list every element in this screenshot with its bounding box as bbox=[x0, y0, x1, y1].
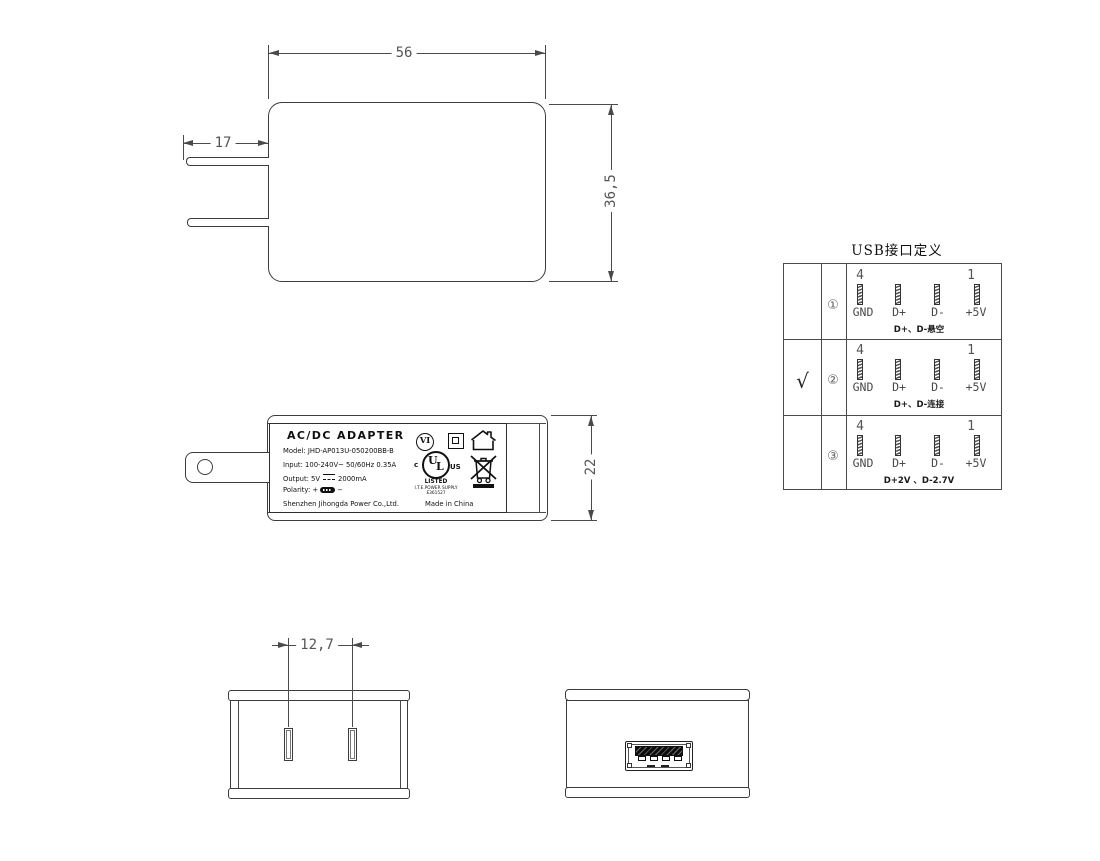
dim-127-label: 12,7 bbox=[296, 637, 338, 653]
weee-crossed-bin-icon bbox=[469, 453, 498, 491]
adapter-technical-drawing: 56 36,5 17 22 AC/DC ADAPTER Model: JHD-A… bbox=[0, 0, 1100, 861]
dim-127-ext-left bbox=[288, 638, 289, 727]
label-polarity-prefix: Polarity: bbox=[283, 486, 310, 494]
efficiency-mark-vi-icon: VI bbox=[416, 433, 434, 451]
row3-number: ③ bbox=[827, 449, 839, 464]
dim-22-ext-bottom bbox=[551, 520, 597, 521]
row2-pin4-number: 4 bbox=[856, 343, 864, 358]
product-label: AC/DC ADAPTER Model: JHD-AP013U-050200BB… bbox=[269, 423, 507, 513]
plugface-bottom-cap bbox=[228, 788, 410, 799]
label-title: AC/DC ADAPTER bbox=[287, 429, 405, 442]
label-made-in: Made in China bbox=[425, 500, 473, 508]
usb-table-row-2: √ ② 4 1 GND D+ D- +5V D+、D-连接 bbox=[784, 339, 1003, 415]
row1-number: ① bbox=[827, 298, 839, 313]
row1-pin-dminus-icon bbox=[934, 284, 940, 305]
row2-check: √ bbox=[784, 369, 821, 393]
ul-us-text: US bbox=[450, 463, 461, 471]
row1-pin-gnd-icon bbox=[857, 284, 863, 305]
ul-c-text: c bbox=[414, 461, 418, 469]
front-view-prong-top bbox=[186, 157, 269, 166]
dim-22-arrow-bottom bbox=[588, 510, 594, 520]
row1-pin-5v-icon bbox=[974, 284, 980, 305]
dim-365-arrow-bottom bbox=[608, 271, 614, 281]
side-view-blade-hole bbox=[197, 459, 213, 475]
label-polarity-plus: + bbox=[312, 486, 318, 494]
row3-label-dminus: D- bbox=[931, 456, 945, 470]
plugface-inner-line-left bbox=[238, 701, 239, 788]
label-input: Input: 100-240V~ 50/60Hz 0.35A bbox=[283, 461, 396, 469]
label-company: Shenzhen Jihongda Power Co.,Ltd. bbox=[283, 500, 399, 508]
row2-number: ② bbox=[827, 373, 839, 388]
label-polarity-minus: − bbox=[337, 486, 343, 494]
row2-pin-gnd-icon bbox=[857, 359, 863, 380]
row1-label-gnd: GND bbox=[853, 305, 874, 319]
label-output: Output: 5V2000mA bbox=[283, 474, 367, 483]
usb-port-spring-left bbox=[647, 765, 655, 767]
usb-port-corner-tl bbox=[627, 743, 632, 748]
dim-17-arrow-right bbox=[258, 140, 268, 146]
row3-note: D+2V 、D-2.7V bbox=[884, 474, 955, 486]
row1-note: D+、D-悬空 bbox=[894, 323, 944, 335]
plugface-inner-line-right bbox=[400, 701, 401, 788]
label-output-prefix: Output: 5V bbox=[283, 475, 320, 483]
plugface-body bbox=[230, 700, 408, 789]
usbface-bottom-cap bbox=[565, 787, 750, 798]
dim-56-arrow-left bbox=[269, 50, 279, 56]
dim-365-arrow-top bbox=[608, 105, 614, 115]
usb-table-row-3: ③ 4 1 GND D+ D- +5V D+2V 、D-2.7V bbox=[784, 415, 1003, 491]
dim-17-arrow-left bbox=[183, 140, 193, 146]
usb-table-title: USB接口定义 bbox=[851, 239, 943, 259]
front-view-prong-bottom bbox=[187, 218, 269, 227]
row3-pin-gnd-icon bbox=[857, 435, 863, 456]
usb-port-contact-4 bbox=[674, 756, 682, 761]
row2-pin-dplus-icon bbox=[895, 359, 901, 380]
row3-pin-dminus-icon bbox=[934, 435, 940, 456]
dim-127-arrow-left bbox=[278, 642, 288, 648]
row1-pin1-number: 1 bbox=[967, 268, 975, 283]
usb-port-corner-br bbox=[686, 763, 691, 768]
row3-label-5v: +5V bbox=[966, 456, 987, 470]
usb-pinout-table: ① 4 1 GND D+ D- +5V D+、D-悬空 √ ② 4 1 GND … bbox=[783, 263, 1002, 490]
row2-label-gnd: GND bbox=[853, 380, 874, 394]
row3-pin1-number: 1 bbox=[967, 419, 975, 434]
usb-port-contact-3 bbox=[662, 756, 670, 761]
label-model: Model: JHD-AP013U-050200BB-B bbox=[283, 447, 394, 455]
usb-port-corner-tr bbox=[686, 743, 691, 748]
indoor-use-house-icon bbox=[470, 430, 497, 451]
row3-pin4-number: 4 bbox=[856, 419, 864, 434]
usb-port-contact-2 bbox=[650, 756, 658, 761]
dim-17-label: 17 bbox=[211, 135, 236, 151]
row3-label-gnd: GND bbox=[853, 456, 874, 470]
usb-port-spring-right bbox=[661, 765, 669, 767]
row3-pin-5v-icon bbox=[974, 435, 980, 456]
row1-pin4-number: 4 bbox=[856, 268, 864, 283]
row1-label-5v: +5V bbox=[966, 305, 987, 319]
usb-port-tongue bbox=[635, 746, 683, 756]
dim-127-arrow-right bbox=[352, 642, 362, 648]
row1-label-dminus: D- bbox=[931, 305, 945, 319]
plugface-prong-right bbox=[348, 728, 357, 761]
label-polarity: Polarity: +− bbox=[283, 486, 343, 494]
usb-port-corner-bl bbox=[627, 763, 632, 768]
dim-365-label: 36,5 bbox=[603, 170, 619, 212]
row1-label-dplus: D+ bbox=[892, 305, 906, 319]
dim-22-label: 22 bbox=[583, 455, 599, 480]
row3-pin-dplus-icon bbox=[895, 435, 901, 456]
usb-table-row-1: ① 4 1 GND D+ D- +5V D+、D-悬空 bbox=[784, 264, 1003, 339]
dim-22-arrow-top bbox=[588, 416, 594, 426]
row2-pin-5v-icon bbox=[974, 359, 980, 380]
dim-56-label: 56 bbox=[392, 45, 417, 61]
dim-127-ext-right bbox=[352, 638, 353, 727]
row2-note: D+、D-连接 bbox=[894, 398, 944, 410]
row2-label-5v: +5V bbox=[966, 380, 987, 394]
dc-voltage-icon bbox=[323, 474, 335, 480]
row1-pin-dplus-icon bbox=[895, 284, 901, 305]
ul-file-number: E361527 bbox=[400, 491, 472, 496]
usb-port-contact-1 bbox=[638, 756, 646, 761]
dim-365-ext-bottom bbox=[549, 281, 618, 282]
front-view-body bbox=[268, 102, 546, 282]
row2-label-dminus: D- bbox=[931, 380, 945, 394]
ul-listed-icon: U L bbox=[422, 451, 450, 479]
label-output-suffix: 2000mA bbox=[338, 475, 367, 483]
dim-56-arrow-right bbox=[535, 50, 545, 56]
row2-pin1-number: 1 bbox=[967, 343, 975, 358]
plugface-prong-left bbox=[284, 728, 293, 761]
side-view-corner-line bbox=[539, 424, 540, 512]
class2-double-insulation-icon bbox=[448, 433, 464, 449]
ul-listed-text: LISTED bbox=[400, 479, 472, 485]
usb-connector-polarity-icon bbox=[320, 487, 335, 493]
row3-label-dplus: D+ bbox=[892, 456, 906, 470]
row2-label-dplus: D+ bbox=[892, 380, 906, 394]
row2-pin-dminus-icon bbox=[934, 359, 940, 380]
